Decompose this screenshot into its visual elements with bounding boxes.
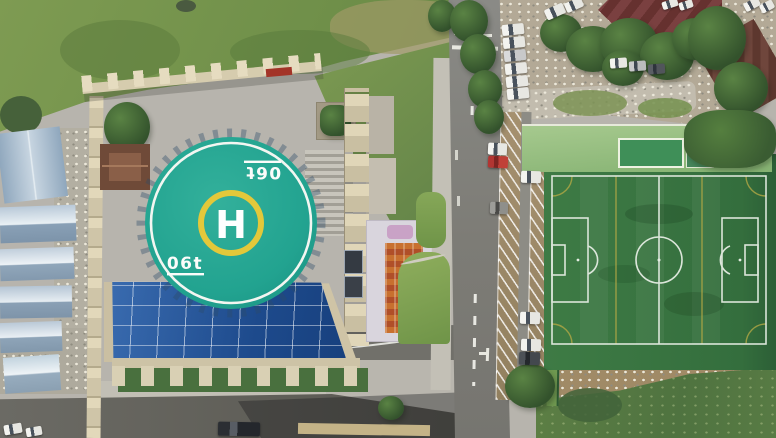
- helipad: H 06t 06t: [136, 128, 326, 318]
- lane-tick: [455, 150, 458, 160]
- soccer-field: [544, 154, 776, 370]
- roadside-car-gray: [490, 202, 508, 215]
- shed-roof: [0, 205, 77, 244]
- lane-tick: [457, 196, 460, 206]
- aerial-photo: H 06t 06t: [0, 0, 776, 438]
- round-tree-bottom: [505, 364, 555, 408]
- roadside-car-white: [521, 171, 541, 184]
- weed-patch: [553, 90, 627, 116]
- helipad-weight-limit: 06t: [167, 254, 203, 274]
- roadside-tree: [474, 100, 504, 134]
- ac-unit: [344, 250, 363, 274]
- edge-vegetation: [684, 110, 776, 168]
- roadside-car-white: [488, 143, 508, 156]
- helipad-weight-underline: [167, 273, 204, 275]
- parked-car: [610, 57, 628, 68]
- shed-roof: [0, 247, 75, 282]
- sidewalk-tan-strip: [298, 423, 430, 436]
- roadside-van-dark: [519, 352, 540, 366]
- south-wall-pillars: [112, 366, 360, 386]
- roadside-car-white: [520, 312, 540, 325]
- helipad-weight-limit-rotated-group: 06t: [244, 161, 281, 182]
- edge-tree: [688, 6, 746, 70]
- weed-patch: [638, 98, 692, 118]
- roadside-car-red: [488, 155, 509, 168]
- parked-car: [502, 36, 525, 49]
- ac-unit: [344, 276, 363, 298]
- green-canopy: [618, 138, 684, 168]
- shed-roof: [3, 354, 61, 394]
- street-car-dark: [218, 422, 260, 437]
- turn-arrow-head: [479, 352, 487, 355]
- parked-car: [629, 60, 647, 71]
- helipad-letter: H: [215, 203, 247, 247]
- parked-car: [648, 63, 666, 74]
- weed-bush: [558, 388, 622, 422]
- parked-car: [501, 23, 524, 36]
- lawn-patch-small: [416, 192, 446, 248]
- parked-car: [503, 49, 526, 62]
- lawn-patch-large: [398, 252, 450, 344]
- bush-top-center: [176, 0, 196, 12]
- shed-roof: [0, 321, 63, 353]
- parked-car: [506, 87, 529, 100]
- shed-roof: [0, 126, 68, 203]
- soccer-field-markings: [544, 154, 776, 370]
- roof-gray-upper: [366, 96, 394, 154]
- edge-tree: [714, 62, 768, 114]
- pink-tarp: [387, 225, 413, 239]
- roadside-car-white: [521, 339, 541, 352]
- parked-car: [504, 62, 527, 75]
- bush-bottom: [378, 396, 404, 420]
- helipad-weight-underline-rotated: [244, 161, 281, 163]
- helipad-graphic: H 06t 06t: [136, 128, 326, 318]
- roadside-tree: [460, 34, 496, 74]
- shed-roof: [0, 285, 72, 318]
- helipad-weight-limit-rotated: 06t: [245, 162, 281, 182]
- roof-gray-lower: [366, 158, 396, 214]
